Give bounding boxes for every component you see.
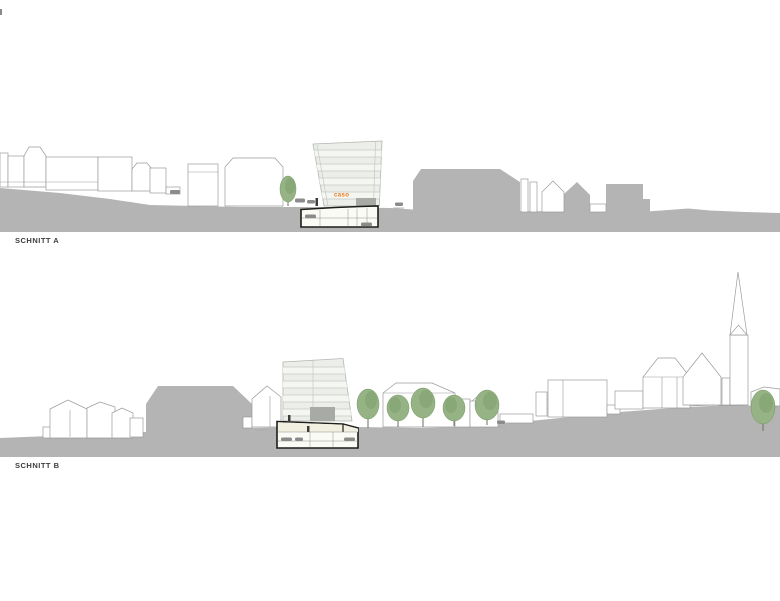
schnitt-b-drawing <box>0 272 780 457</box>
car-icon <box>305 215 316 219</box>
building <box>150 168 166 193</box>
gray-gable-house <box>564 182 590 232</box>
context-buildings-a-right <box>521 179 606 212</box>
context-houses-b-left <box>43 400 143 438</box>
car-icon <box>170 190 180 194</box>
building-chamfered <box>225 158 283 206</box>
church-tower <box>730 335 748 405</box>
building <box>8 156 24 187</box>
church-spire <box>730 272 747 335</box>
ground-profile-a <box>0 188 780 232</box>
gable-house <box>132 163 152 191</box>
building <box>615 391 643 409</box>
person-figure <box>288 415 291 421</box>
section-a-label: SCHNITT A <box>15 237 59 245</box>
building <box>98 157 132 191</box>
building <box>188 164 218 206</box>
low-building <box>590 204 606 212</box>
gable-house <box>683 353 721 405</box>
gable-house <box>542 181 564 212</box>
car-icon <box>344 438 355 442</box>
sections-drawing: caso <box>0 0 780 601</box>
caso-logo: caso <box>334 193 349 199</box>
tall-building <box>548 380 607 417</box>
car-icon <box>395 203 403 207</box>
car-icon <box>295 199 305 203</box>
building <box>46 157 98 190</box>
entrance-block <box>310 407 335 421</box>
tower-section-b <box>283 359 352 422</box>
gray-block <box>606 184 650 232</box>
section-b-label: SCHNITT B <box>15 462 60 470</box>
tower-section-a: caso <box>313 141 382 207</box>
car-icon <box>307 200 315 204</box>
gable-house <box>50 400 87 438</box>
schnitt-a-drawing: caso <box>0 9 780 232</box>
person-figure <box>316 198 319 206</box>
car-icon <box>281 438 292 442</box>
gray-massing <box>413 169 520 232</box>
church <box>730 272 748 405</box>
car-icon <box>361 223 372 227</box>
car-icon <box>497 421 505 425</box>
entrance-block <box>356 198 376 207</box>
annex <box>536 392 547 416</box>
underground-parking-a <box>301 206 378 227</box>
building <box>530 182 537 212</box>
kiosk <box>243 417 252 428</box>
building <box>521 179 528 212</box>
building <box>130 418 143 437</box>
drawing-canvas: caso <box>0 0 780 601</box>
gray-massing-b <box>146 386 252 457</box>
gable-house <box>24 147 46 187</box>
car-icon <box>295 438 303 442</box>
person-figure <box>307 426 310 432</box>
gable-house <box>87 402 115 438</box>
edge-artifact <box>0 9 2 15</box>
underground-parking-b <box>277 422 358 449</box>
ground-floor-band <box>278 422 358 432</box>
tree <box>357 389 379 428</box>
church-annex <box>722 378 730 405</box>
